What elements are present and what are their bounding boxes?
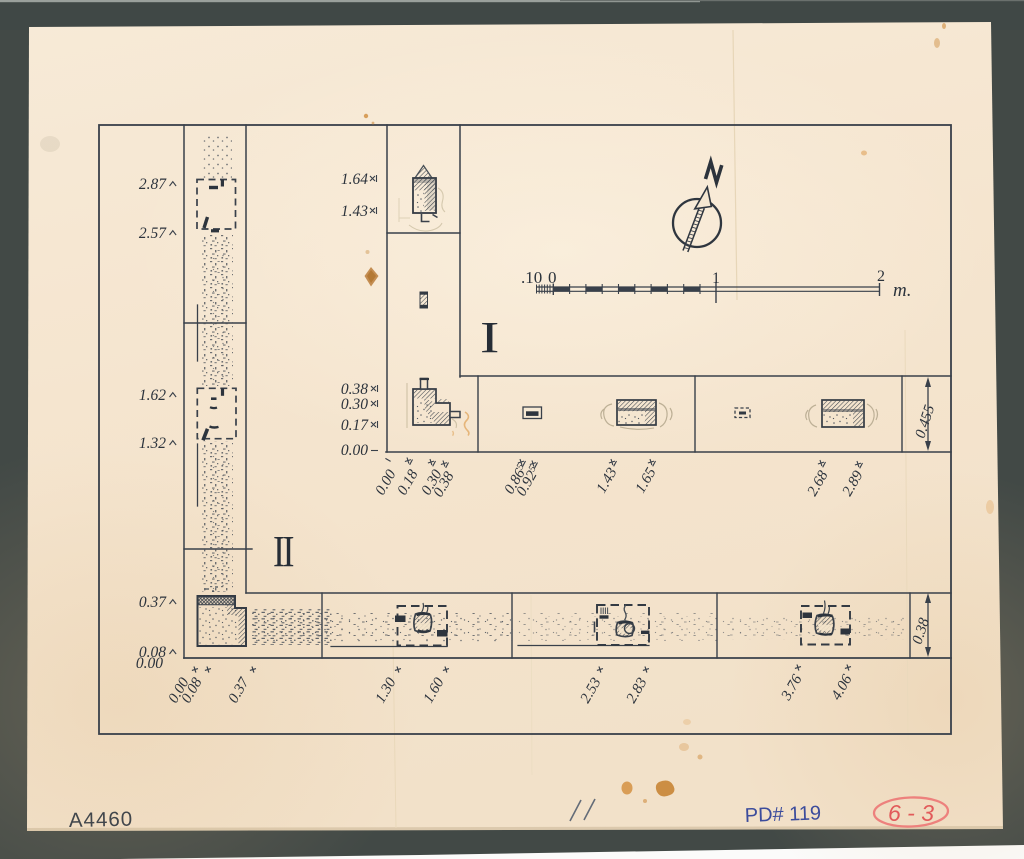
svg-text:0.30: 0.30 [341,396,368,413]
svg-text:m.: m. [893,280,911,301]
svg-text:0.00: 0.00 [136,655,163,672]
svg-text:6 - 3: 6 - 3 [888,800,934,826]
svg-text:.10: .10 [521,268,542,287]
svg-text:II: II [273,527,293,576]
svg-text:1.64: 1.64 [341,171,368,188]
svg-text:2: 2 [877,268,885,285]
svg-text:0.17: 0.17 [341,417,369,434]
svg-text:2.87: 2.87 [139,176,167,193]
svg-text:1.32: 1.32 [139,435,166,452]
svg-text:0.37: 0.37 [139,594,167,611]
svg-text:1.62: 1.62 [139,387,166,404]
svg-text:0: 0 [548,268,557,287]
svg-text:2.57: 2.57 [139,225,167,242]
svg-text:I: I [480,314,499,363]
svg-text:1: 1 [712,270,720,287]
svg-text:0.00: 0.00 [341,442,368,459]
svg-text:1.43: 1.43 [341,203,368,220]
svg-text:A4460: A4460 [69,808,134,832]
svg-text:PD# 119: PD# 119 [744,802,821,827]
